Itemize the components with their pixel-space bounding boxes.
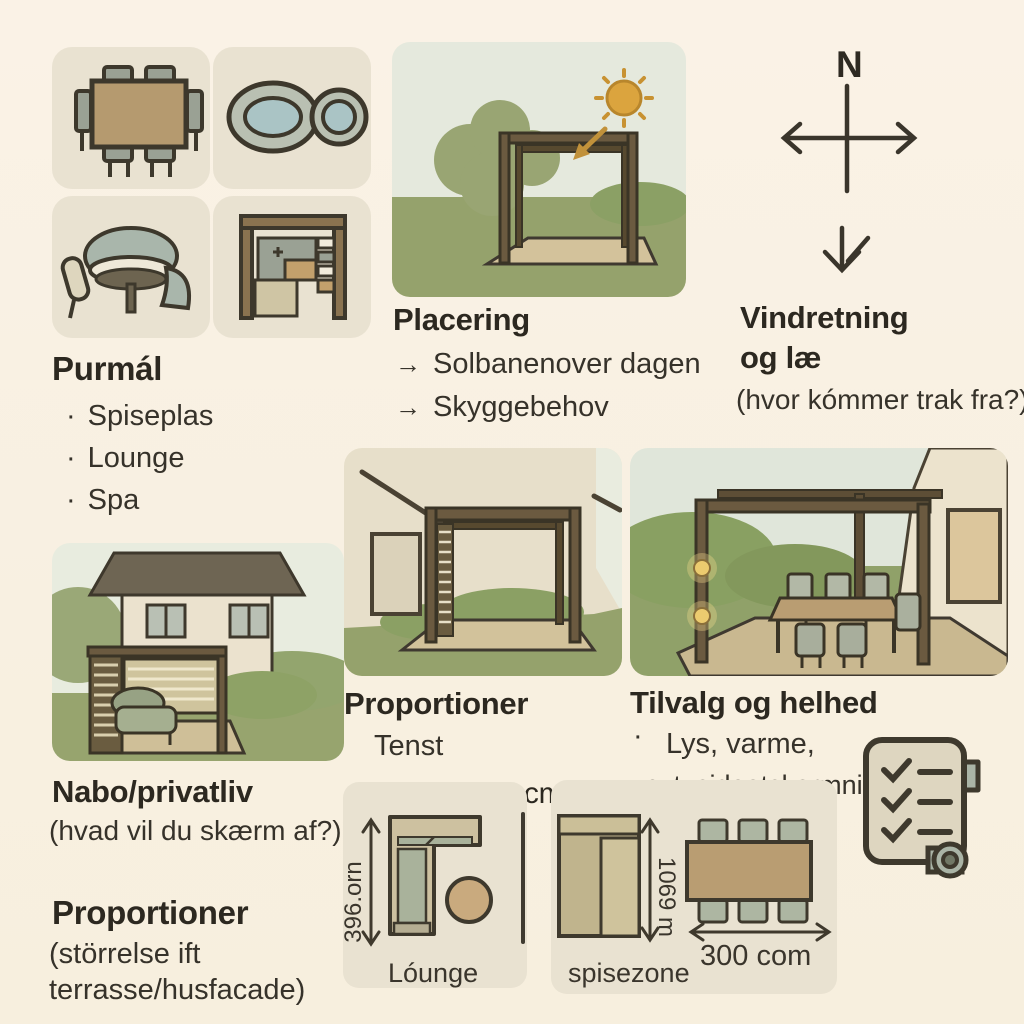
- plan-table-width-label: 300 com: [700, 940, 811, 973]
- spa-tubs-icon: [213, 47, 371, 189]
- proportioner-left-subtitle1: (störrelse ift: [49, 938, 200, 971]
- placering-item-label: Skyggebehov: [433, 391, 609, 423]
- purpose-item-label: Lounge: [88, 442, 185, 474]
- tilvalg-title: Tilvalg og helhed: [630, 685, 878, 721]
- tilvalg-bullet: ·: [633, 720, 643, 753]
- placering-item-label: Solbanenover dagen: [433, 348, 701, 380]
- placering-title: Placering: [393, 302, 530, 338]
- dining-table-plan-icon: [687, 820, 811, 922]
- window-icon: [372, 534, 420, 614]
- compass-icon: [770, 80, 930, 295]
- nabo-subtitle: (hvad vil du skærm af?): [49, 815, 342, 847]
- plan-lounge-caption: Lóunge: [388, 958, 478, 989]
- proportioner-center-title: Proportioner: [344, 686, 528, 722]
- proportioner-left-subtitle2: terrasse/husfacade): [49, 974, 305, 1007]
- roof: [90, 553, 304, 595]
- placering-item: →Solbanenover dagen: [395, 348, 701, 381]
- tilvalg-line1: Lys, varme,: [666, 728, 815, 761]
- house-pergola-icon: [52, 543, 344, 761]
- tilvalg-illustration: [630, 448, 1008, 676]
- nabo-illustration: [52, 543, 344, 761]
- wind-arrow-icon: [825, 228, 868, 270]
- dining-table-icon: [52, 47, 210, 189]
- tile-dining: [52, 47, 210, 189]
- pergola-dining-icon: [630, 448, 1008, 676]
- proportioner-illustration: [344, 448, 622, 676]
- checklist-icon: [858, 732, 988, 882]
- plan-spise-caption: spisezone: [568, 958, 690, 989]
- plan-divider: [521, 812, 525, 944]
- pergola-sun-icon: [392, 42, 686, 297]
- outdoor-kitchen-icon: [213, 196, 371, 338]
- window-icon: [948, 510, 1000, 602]
- tile-outdoor-kitchen: [213, 196, 371, 338]
- purpose-item-label: Spiseplas: [88, 400, 214, 432]
- pergola-wall-icon: [344, 448, 622, 676]
- bullet-dot: ·: [66, 442, 76, 475]
- lounge-table-icon: [52, 196, 210, 338]
- vindretning-title-line2: og læ: [740, 340, 821, 376]
- purpose-item: ·Spa: [66, 484, 139, 517]
- sofa-icon: [559, 816, 639, 936]
- vindretning-subtitle: (hvor kómmer trak fra?): [736, 384, 1024, 416]
- nabo-title: Nabo/privatliv: [52, 774, 253, 810]
- plan-spise-depth-label: 1069 m: [652, 837, 680, 957]
- vindretning-title-line1: Vindretning: [740, 300, 908, 336]
- purpose-item-label: Spa: [88, 484, 140, 516]
- bullet-dot: ·: [66, 484, 76, 517]
- placering-item: →Skyggebehov: [395, 391, 609, 424]
- tile-lounge-set: [52, 196, 210, 338]
- arrow-icon: →: [395, 349, 421, 380]
- proportioner-left-title: Proportioner: [52, 894, 248, 932]
- dimension-arrow-icon: [691, 924, 829, 940]
- bullet-dot: ·: [66, 400, 76, 433]
- purpose-item: ·Lounge: [66, 442, 184, 475]
- purpose-title: Purmál: [52, 350, 162, 388]
- side-table-icon: [447, 878, 491, 922]
- plan-lounge-depth-label: 396.orn: [340, 842, 368, 962]
- infographic-canvas: Purmál ·Spiseplas ·Lounge ·Spa: [0, 0, 1024, 1024]
- proportioner-center-note: Tenst: [374, 730, 443, 763]
- purpose-item: ·Spiseplas: [66, 400, 213, 433]
- scroll-curl: [928, 844, 966, 876]
- tile-spa: [213, 47, 371, 189]
- placering-illustration: [392, 42, 686, 297]
- arrow-icon: →: [395, 392, 421, 423]
